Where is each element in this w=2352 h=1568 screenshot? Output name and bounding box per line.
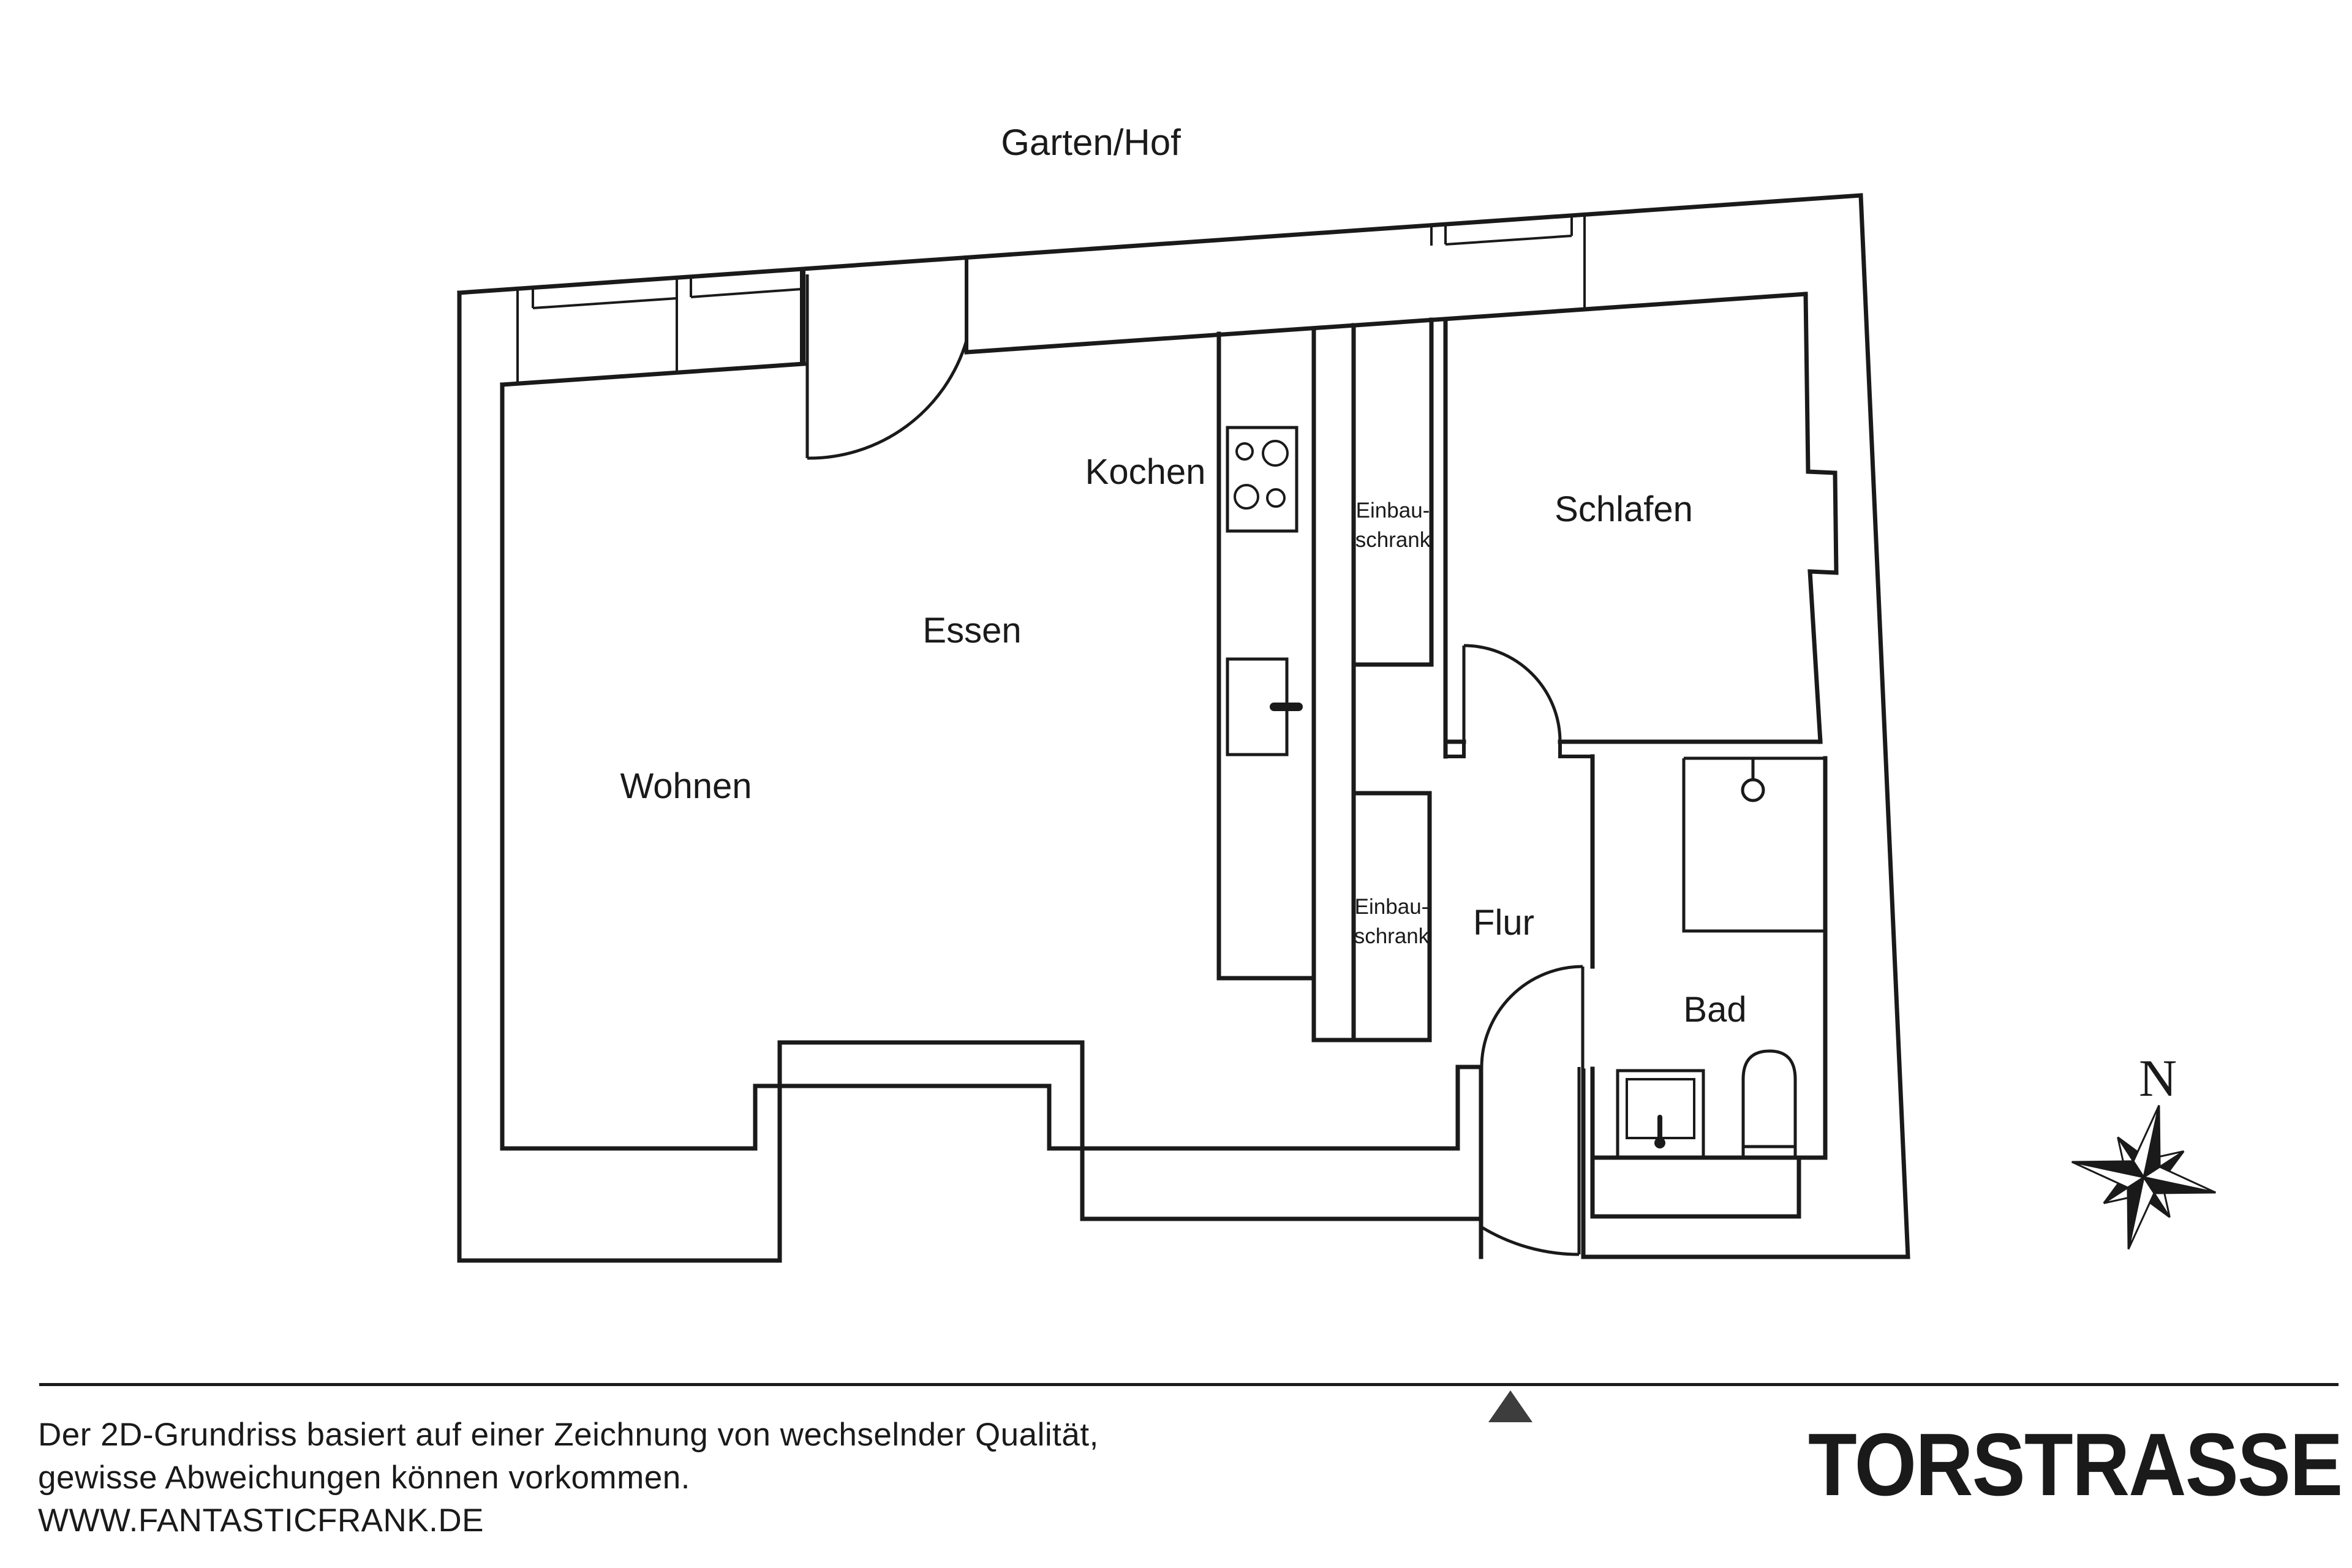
toilet-icon [1743,1051,1795,1158]
svg-text:Einbau-: Einbau- [1355,895,1429,919]
svg-text:Einbau-: Einbau- [1356,499,1430,522]
closet-label-upper: Einbau- schrank [1355,499,1431,552]
room-label-bad: Bad [1683,990,1746,1030]
room-label-kochen: Kochen [1085,452,1206,492]
shower-icon [1684,758,1825,931]
room-label-flur: Flur [1473,903,1534,943]
disclaimer-line-1: Der 2D-Grundriss basiert auf einer Zeich… [38,1414,1099,1457]
bathroom-sink-icon [1618,1071,1703,1158]
stove-icon [1227,428,1297,531]
compass-rose-icon [2057,1090,2231,1265]
kitchen-sink-icon [1227,659,1298,755]
entry-door [1481,1067,1579,1254]
outdoor-area-label: Garten/Hof [1001,122,1181,163]
footer-separator-line [39,1383,2339,1386]
schlafen-walls [1445,319,1820,756]
compass-north-label: N [2139,1049,2177,1107]
schlafen-door [1464,646,1560,742]
footer-disclaimer: Der 2D-Grundriss basiert auf einer Zeich… [38,1414,1099,1542]
room-label-essen: Essen [922,611,1021,650]
window-left-2 [691,269,801,363]
closet-upper [1354,320,1431,665]
window-schlafen [1431,214,1585,309]
inner-walls [502,294,1836,1148]
street-name-title: TORSTRASSE [1808,1414,2342,1516]
room-label-schlafen: Schlafen [1555,489,1693,529]
window-left-1 [518,277,691,383]
svg-text:schrank: schrank [1354,924,1430,948]
floor-plan-page: N Garten/Hof Kochen Essen Wohnen Schlafe… [0,0,2352,1568]
disclaimer-line-2: gewisse Abweichungen können vorkommen. [38,1457,1099,1499]
closet-label-lower: Einbau- schrank [1354,895,1430,948]
svg-text:schrank: schrank [1355,528,1431,552]
garden-door [804,257,967,458]
footer-website: WWW.FANTASTICFRANK.DE [38,1499,1099,1542]
bad-door [1482,967,1583,1069]
room-label-wohnen: Wohnen [620,766,752,806]
entrance-marker-icon [1488,1390,1532,1422]
floor-plan-svg: N Garten/Hof Kochen Essen Wohnen Schlafe… [0,0,2352,1568]
